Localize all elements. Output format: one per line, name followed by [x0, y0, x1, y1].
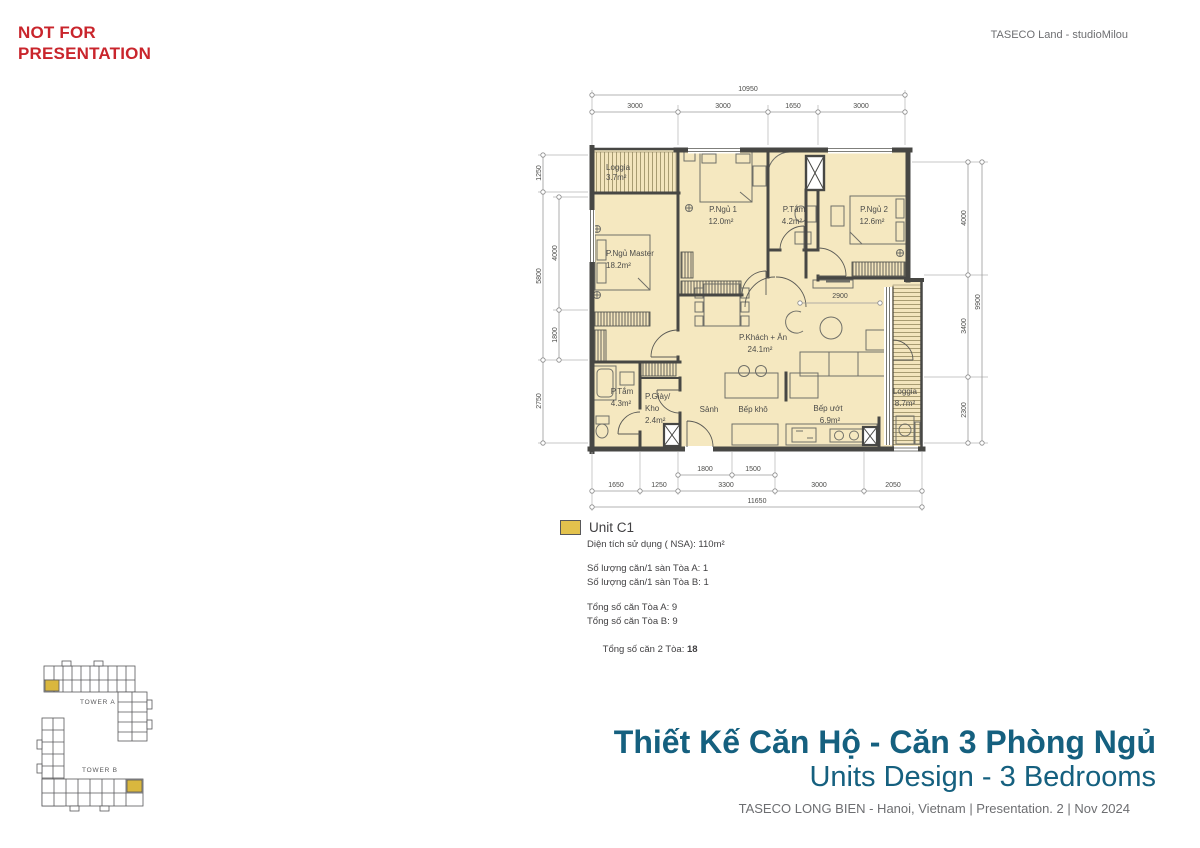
room-living-name: P.Khách + Ăn: [739, 333, 787, 342]
dim-left-2: 5800: [536, 268, 543, 284]
watermark-line1: NOT FOR: [18, 22, 151, 43]
unit-legend: Unit C1 Diện tích sử dụng ( NSA): 110m² …: [560, 520, 820, 671]
total-units-b: Tổng số căn Tòa B: 9: [587, 615, 820, 629]
presentation-slide: { "watermark": {"line1": "NOT FOR", "lin…: [0, 0, 1200, 848]
room-shoe-line1: P.Giày/: [645, 392, 671, 401]
not-for-presentation-watermark: NOT FOR PRESENTATION: [18, 22, 151, 64]
tower-b-highlighted-unit: [127, 780, 142, 792]
room-master-area: 18.2m²: [606, 261, 631, 270]
room-kitchen-wet-area: 6.9m²: [820, 416, 841, 425]
room-bath2-name: P.Tắm: [611, 387, 634, 396]
room-shoe-line2: Kho: [645, 404, 660, 413]
dim-left-inner-2: 1800: [552, 327, 559, 343]
dim-bottom-2: 1250: [651, 482, 667, 489]
dim-bottom-4: 3000: [811, 482, 827, 489]
room-loggia-right-name: Loggia: [893, 387, 918, 396]
room-shoe-area: 2.4m²: [645, 416, 666, 425]
dim-left-3: 2750: [536, 393, 543, 409]
studio-credit: TASECO Land - studioMilou: [991, 29, 1128, 41]
dim-bottom-total: 11650: [748, 498, 767, 505]
dim-bottom-1: 1650: [608, 482, 624, 489]
floor-plan: 10950 3000 3000 1650 3000 1250 5800 2750…: [500, 75, 1060, 520]
dim-bottom-upper-1: 1800: [697, 466, 713, 473]
room-loggia-top-name: Loggia: [606, 163, 631, 172]
unit-color-swatch: [560, 520, 581, 535]
dim-bottom-upper-2: 1500: [745, 466, 761, 473]
tower-a-highlighted-unit: [45, 680, 59, 691]
total-units-both-label: Tổng số căn 2 Tòa:: [603, 644, 687, 655]
dim-right-total: 9900: [975, 294, 982, 310]
room-bed1-area: 12.0m²: [709, 217, 734, 226]
total-units-a: Tổng số căn Tòa A: 9: [587, 601, 820, 615]
units-per-floor-b: Số lượng căn/1 sàn Tòa B: 1: [587, 576, 820, 590]
dim-left-inner-1: 4000: [552, 245, 559, 261]
room-bed1-name: P.Ngủ 1: [709, 205, 737, 214]
dim-right-3: 2300: [961, 402, 968, 418]
room-loggia-right-area: 8.7m²: [895, 399, 916, 408]
dim-right-2: 3400: [961, 318, 968, 334]
page-title-english: Units Design - 3 Bedrooms: [436, 760, 1156, 794]
dim-bottom-3: 3300: [718, 482, 734, 489]
dim-top-total: 10950: [738, 86, 758, 93]
units-per-floor-a: Số lượng căn/1 sàn Tòa A: 1: [587, 562, 820, 576]
total-units-both-value: 18: [687, 644, 698, 655]
room-kitchen-dry-name: Bếp khô: [738, 405, 768, 414]
dim-right-1: 4000: [961, 210, 968, 226]
footer-credit: TASECO LONG BIEN - Hanoi, Vietnam | Pres…: [436, 801, 1156, 816]
total-units-both: Tổng số căn 2 Tòa: 18: [587, 629, 820, 671]
title-block: Thiết Kế Căn Hộ - Căn 3 Phòng Ngủ Units …: [436, 724, 1156, 816]
room-living-area: 24.1m²: [748, 345, 773, 354]
dim-bottom-5: 2050: [885, 482, 901, 489]
room-bed2-area: 12.6m²: [860, 217, 885, 226]
dim-top-2: 3000: [715, 103, 731, 110]
room-bath1-area: 4.2m²: [782, 217, 803, 226]
room-hall-name: Sảnh: [700, 405, 719, 414]
dim-top-1: 3000: [627, 103, 643, 110]
dim-living: 2900: [832, 293, 848, 300]
room-loggia-top-area: 3.7m²: [606, 173, 627, 182]
room-bath1-name: P.Tắm: [783, 205, 806, 214]
dim-top-3: 1650: [785, 103, 801, 110]
room-master-name: P.Ngủ Master: [606, 249, 654, 258]
room-bath2-area: 4.3m²: [611, 399, 632, 408]
tower-b-label: TOWER B: [82, 767, 118, 774]
unit-nsa: Diện tích sử dụng ( NSA): 110m²: [587, 538, 820, 551]
site-key-plan: TOWER A TOWER B: [28, 650, 173, 815]
page-title-vietnamese: Thiết Kế Căn Hộ - Căn 3 Phòng Ngủ: [436, 724, 1156, 760]
tower-a-label: TOWER A: [80, 699, 115, 706]
room-bed2-name: P.Ngủ 2: [860, 205, 888, 214]
room-kitchen-wet-name: Bếp ướt: [813, 404, 843, 413]
unit-name: Unit C1: [589, 520, 634, 535]
dim-left-1: 1250: [536, 165, 543, 181]
dim-top-4: 3000: [853, 103, 869, 110]
watermark-line2: PRESENTATION: [18, 43, 151, 64]
